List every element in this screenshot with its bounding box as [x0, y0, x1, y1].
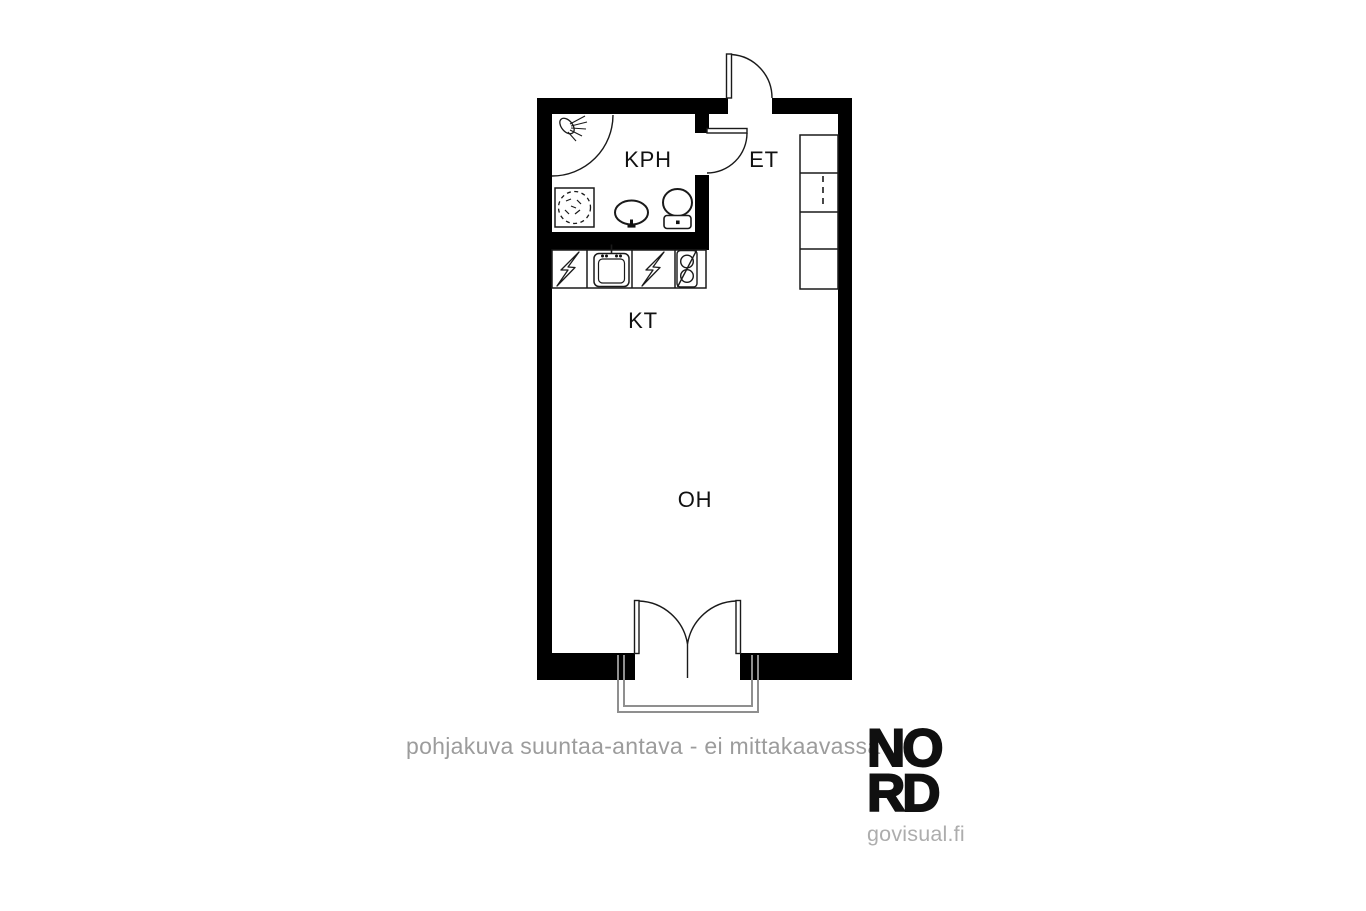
entrance-door [727, 54, 773, 98]
bathroom-door-swing-arc [707, 133, 747, 173]
shower-icon [557, 116, 587, 141]
balcony-door-left-leaf [635, 601, 640, 654]
wall-right [838, 98, 852, 680]
balcony-door-right-arc [688, 601, 737, 644]
wall-top-left [537, 98, 728, 114]
bathroom-sink-icon [615, 201, 648, 228]
balcony-door-right-leaf [736, 601, 741, 654]
wall-bathroom-right-lower [695, 175, 709, 232]
wall-left [537, 98, 552, 680]
room-label-oh: OH [678, 487, 713, 512]
page-background: KPH ET KT OH pohjakuva suuntaa-antava - … [0, 0, 1366, 911]
bathroom-door-leaf [707, 129, 747, 134]
stove-reservation-icon [677, 251, 697, 288]
balcony-double-door [635, 601, 741, 679]
entrance-door-leaf [727, 54, 732, 98]
toilet-icon [663, 189, 692, 229]
wall-bottom-left [537, 653, 635, 680]
logo-line-2: RD [867, 771, 977, 816]
room-label-kph: KPH [624, 147, 672, 172]
nord-logo: NO RD govisual.fi [867, 726, 977, 845]
wall-bottom-right [740, 653, 852, 680]
wall-bathroom-bottom [537, 232, 709, 250]
entrance-door-swing-arc [732, 55, 773, 99]
room-label-et: ET [749, 147, 779, 172]
washing-machine-reservation-icon [555, 188, 594, 227]
bathroom-door [707, 129, 747, 174]
floor-plan: KPH ET KT OH [0, 0, 1366, 911]
disclaimer-text: pohjakuva suuntaa-antava - ei mittakaava… [406, 733, 880, 760]
wardrobe [800, 135, 838, 289]
logo-url: govisual.fi [867, 823, 977, 845]
room-label-kt: KT [628, 308, 658, 333]
balcony-door-left-arc [639, 601, 688, 644]
